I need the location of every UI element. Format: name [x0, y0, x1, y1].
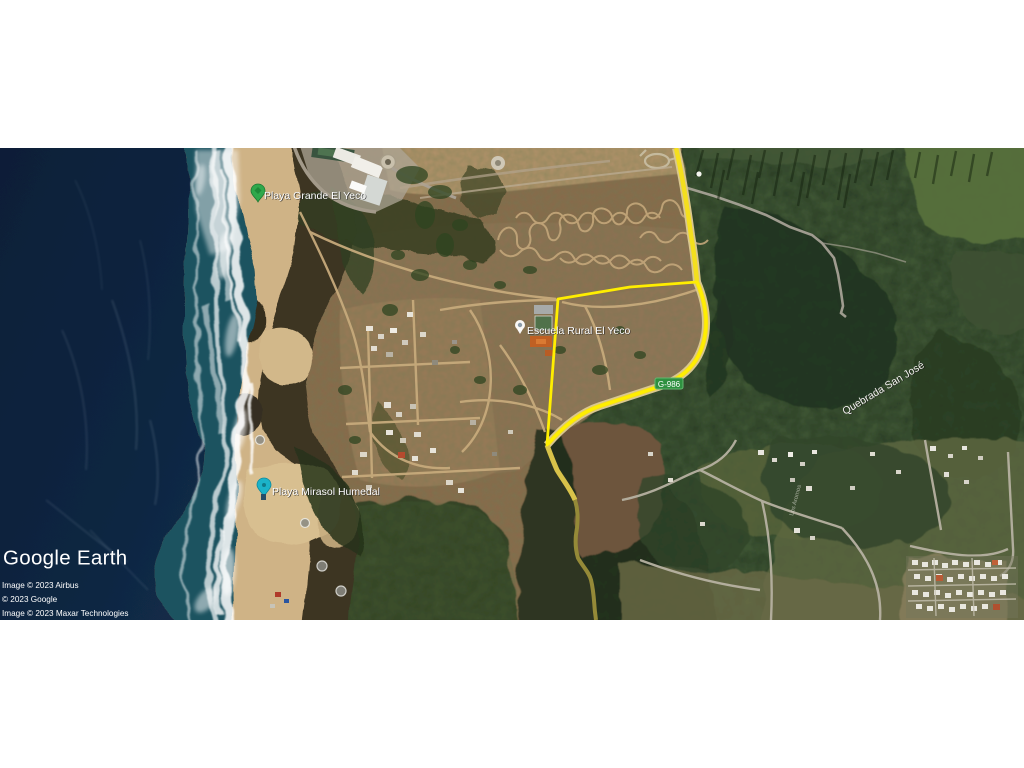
svg-text:Escuela Rural El Yeco: Escuela Rural El Yeco — [527, 325, 630, 337]
svg-text:Image © 2023 Airbus: Image © 2023 Airbus — [2, 581, 79, 590]
svg-text:Google Earth: Google Earth — [3, 547, 127, 570]
svg-text:Playa Mirasol Humedal: Playa Mirasol Humedal — [272, 486, 380, 498]
svg-text:Image © 2023 Maxar Technologie: Image © 2023 Maxar Technologies — [2, 609, 129, 618]
svg-text:© 2023 Google: © 2023 Google — [2, 595, 58, 604]
svg-text:G-986: G-986 — [658, 380, 681, 389]
svg-text:Playa Grande El Yeco: Playa Grande El Yeco — [264, 190, 366, 202]
